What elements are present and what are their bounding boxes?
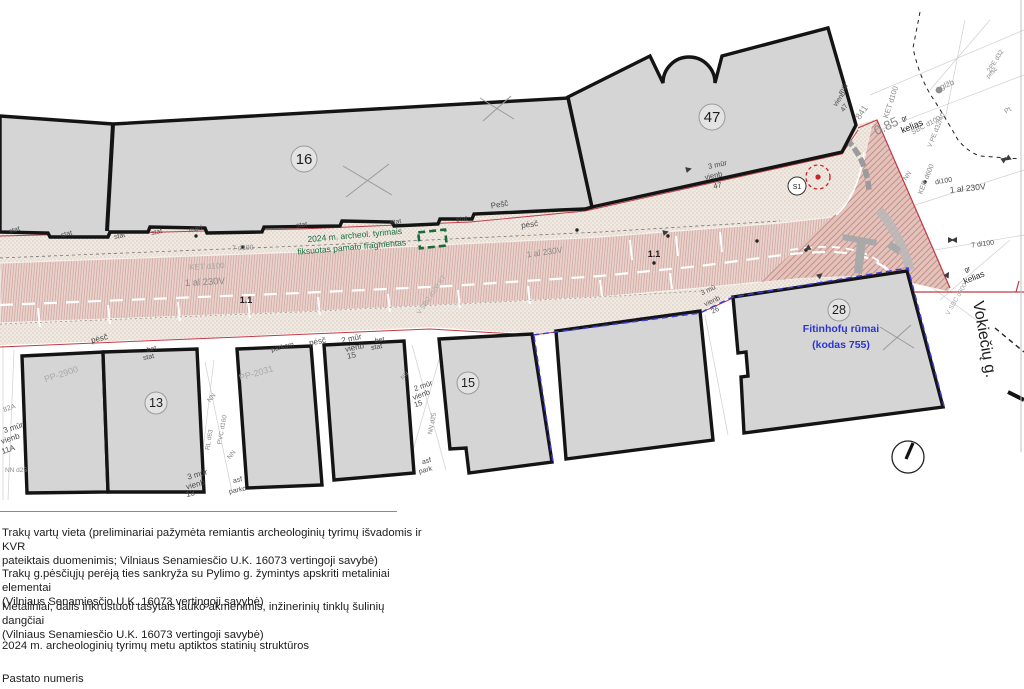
map-label: (kodas 755) xyxy=(812,339,870,351)
plot-number: 15 xyxy=(461,376,475,390)
map-label: 7 di100 xyxy=(971,239,995,249)
plot-number: 28 xyxy=(832,303,846,317)
plot-number: 16 xyxy=(296,151,313,168)
map-label: NN d25 xyxy=(427,412,439,435)
far-building-corner xyxy=(1008,392,1024,400)
legend-item: 2024 m. archeologinių tyrimų metu aptikt… xyxy=(2,640,422,654)
map-label: 1 al 230V xyxy=(949,181,986,195)
plot-13 xyxy=(103,349,204,492)
legend-item-line: Pastato numeris xyxy=(2,673,422,687)
plot-15 xyxy=(439,334,552,473)
legend-divider xyxy=(0,511,397,512)
map-label: NN d25 xyxy=(5,467,27,474)
map-label: 1 al 230V xyxy=(185,276,226,289)
building-28 xyxy=(733,271,943,433)
map-label: Pt xyxy=(1003,106,1012,116)
map-label: glžb xyxy=(939,78,956,92)
map-label: KER d600 xyxy=(917,163,935,195)
legend-item: Metaliniai, dalis inkrustuoti tašytais l… xyxy=(2,601,422,642)
legend-item: Pastato numeris xyxy=(2,673,422,687)
legend-item-line: Metaliniai, dalis inkrustuoti tašytais l… xyxy=(2,601,422,629)
map-label: NN xyxy=(206,392,218,404)
map-label: 1.1 xyxy=(240,295,253,305)
legend-item: Trakų vartų vieta (preliminariai pažymėt… xyxy=(2,527,422,568)
plot-c xyxy=(324,341,414,480)
site-plan-page: 1647131528 Fitinhofų rūmai(kodas 755)Vok… xyxy=(0,0,1024,689)
plot-number: 13 xyxy=(149,396,163,410)
map-label: PVC d160 xyxy=(217,414,229,445)
map-label: KET d100 xyxy=(881,85,900,119)
map-label: 0.85 xyxy=(871,114,900,139)
legend-item-line: Trakų vartų vieta (preliminariai pažymėt… xyxy=(2,527,422,555)
legend-item-line: pateiktais duomenimis; Vilniaus Senamies… xyxy=(2,555,422,569)
map-label: Fitinhofų rūmai xyxy=(803,323,879,335)
plot-number: 47 xyxy=(704,109,721,126)
map-label: 15 xyxy=(413,398,424,409)
map-label: RL d63 xyxy=(204,429,215,451)
map-label: park xyxy=(418,465,433,475)
plot-d xyxy=(556,311,713,459)
map-label: 7 d100 xyxy=(232,244,254,252)
map-label: Vokiečių g. xyxy=(969,300,999,379)
map-label: 1.1 xyxy=(648,249,661,259)
north-arrow xyxy=(892,441,924,473)
map-label: NN xyxy=(226,449,238,461)
map-label: 82A xyxy=(2,403,16,414)
map-label: KET d100 xyxy=(189,261,225,272)
map-label: NN xyxy=(902,170,913,182)
legend-item-line: 2024 m. archeologinių tyrimų metu aptikt… xyxy=(2,640,422,654)
legend-item-line: Trakų g.pėsčiųjų perėją ties sankryža su… xyxy=(2,568,422,596)
map-label: S1 xyxy=(793,184,802,191)
map-label: asf xyxy=(232,476,243,485)
plot-b xyxy=(237,346,322,488)
